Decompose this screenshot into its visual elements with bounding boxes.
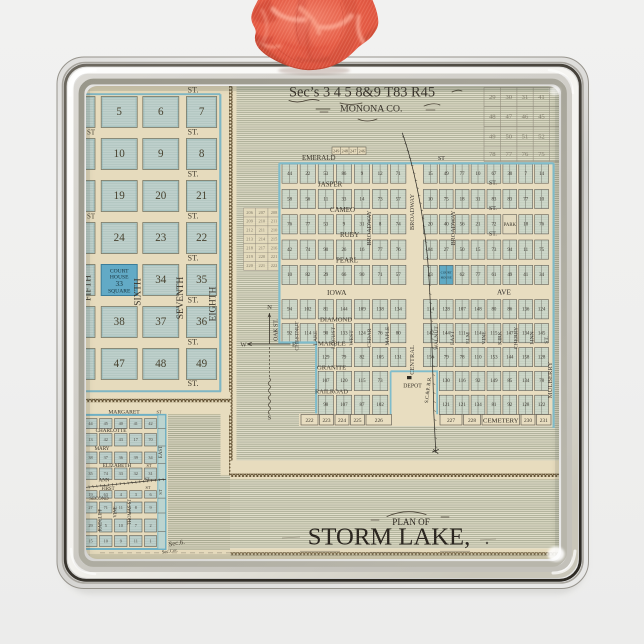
- svg-text:148: 148: [474, 308, 482, 313]
- svg-text:144: 144: [506, 355, 514, 360]
- svg-text:206: 206: [246, 210, 253, 215]
- svg-text:142: 142: [427, 331, 435, 336]
- svg-text:37: 37: [104, 455, 108, 460]
- svg-text:209: 209: [246, 219, 253, 224]
- svg-text:223: 223: [323, 418, 331, 424]
- svg-text:46: 46: [522, 114, 529, 121]
- svg-text:10: 10: [104, 539, 108, 544]
- svg-text:9: 9: [120, 539, 122, 544]
- svg-text:ELIZABETH: ELIZABETH: [103, 463, 132, 469]
- svg-text:11: 11: [323, 197, 328, 202]
- svg-text:121: 121: [458, 403, 466, 408]
- svg-text:71: 71: [378, 273, 383, 278]
- svg-text:107: 107: [458, 308, 466, 313]
- svg-text:31: 31: [148, 471, 152, 476]
- svg-text:26: 26: [341, 248, 346, 253]
- svg-text:77: 77: [460, 172, 465, 177]
- svg-text:11: 11: [134, 539, 138, 544]
- svg-text:36: 36: [119, 455, 123, 460]
- svg-text:98: 98: [323, 403, 328, 408]
- svg-text:42: 42: [287, 248, 292, 253]
- svg-text:77: 77: [476, 273, 481, 278]
- svg-text:30: 30: [505, 94, 512, 101]
- svg-text:WALNUT: WALNUT: [434, 326, 440, 350]
- svg-text:11: 11: [523, 248, 528, 253]
- svg-text:57: 57: [396, 273, 401, 278]
- svg-text:VINE: VINE: [114, 506, 119, 517]
- svg-text:EAST: EAST: [450, 330, 456, 345]
- svg-text:211: 211: [271, 219, 277, 224]
- svg-text:115: 115: [490, 331, 498, 336]
- svg-text:ST: ST: [158, 489, 163, 494]
- svg-text:87: 87: [360, 403, 365, 408]
- svg-text:120: 120: [340, 379, 348, 384]
- svg-text:COURT: COURT: [110, 269, 129, 275]
- svg-text:CEMETERY: CEMETERY: [483, 417, 519, 424]
- svg-text:LINN: LINN: [529, 331, 535, 344]
- svg-text:33: 33: [341, 197, 346, 202]
- svg-text:51: 51: [522, 133, 529, 140]
- svg-text:124: 124: [358, 331, 366, 336]
- svg-text:114: 114: [304, 331, 312, 336]
- svg-text:15: 15: [476, 248, 481, 253]
- svg-text:74: 74: [396, 223, 401, 228]
- svg-text:1: 1: [149, 539, 151, 544]
- svg-text:5: 5: [116, 106, 122, 118]
- svg-text:EIGHTH: EIGHTH: [209, 286, 219, 321]
- svg-text:34: 34: [539, 273, 544, 278]
- svg-text:215: 215: [271, 236, 278, 241]
- svg-text:231: 231: [540, 418, 548, 424]
- svg-text:36: 36: [196, 316, 208, 328]
- svg-text:80: 80: [491, 308, 496, 313]
- svg-text:75: 75: [539, 248, 544, 253]
- svg-text:109: 109: [358, 308, 366, 313]
- svg-text:221: 221: [259, 263, 266, 268]
- svg-text:82: 82: [305, 273, 310, 278]
- svg-text:147: 147: [506, 331, 514, 336]
- svg-text:ELM: ELM: [466, 332, 472, 344]
- svg-text:81: 81: [323, 308, 328, 313]
- svg-text:49: 49: [196, 358, 208, 370]
- svg-text:6: 6: [149, 492, 151, 497]
- svg-text:41: 41: [134, 421, 138, 426]
- svg-text:211: 211: [259, 228, 265, 233]
- svg-text:122: 122: [538, 403, 546, 408]
- svg-text:77: 77: [505, 151, 512, 158]
- svg-text:77: 77: [305, 223, 310, 228]
- svg-text:EAST: EAST: [159, 446, 164, 458]
- svg-text:5: 5: [105, 523, 107, 528]
- svg-text:128: 128: [538, 355, 546, 360]
- svg-text:102: 102: [376, 403, 384, 408]
- svg-text:33: 33: [119, 471, 123, 476]
- svg-text:22: 22: [305, 172, 310, 177]
- svg-text:156: 156: [427, 355, 435, 360]
- svg-text:90: 90: [323, 331, 328, 336]
- svg-text:14: 14: [539, 172, 544, 177]
- svg-text:133: 133: [340, 331, 348, 336]
- svg-text:31: 31: [360, 223, 365, 228]
- svg-text:23: 23: [155, 232, 167, 244]
- svg-text:2: 2: [149, 523, 151, 528]
- svg-text:221: 221: [271, 254, 278, 259]
- svg-text:17: 17: [134, 437, 138, 442]
- svg-text:N: N: [267, 304, 272, 311]
- svg-text:THOMAS ST: THOMAS ST: [128, 499, 133, 525]
- svg-text:BROADWAY: BROADWAY: [409, 193, 416, 230]
- svg-text:39: 39: [134, 455, 138, 460]
- svg-text:70: 70: [148, 437, 152, 442]
- svg-text:219: 219: [246, 254, 253, 259]
- svg-text:MARGARET: MARGARET: [108, 409, 140, 415]
- svg-text:31: 31: [476, 197, 481, 202]
- svg-text:84: 84: [428, 248, 433, 253]
- svg-text:128: 128: [522, 403, 530, 408]
- svg-text:226: 226: [375, 418, 383, 424]
- svg-text:216: 216: [271, 245, 278, 250]
- svg-text:EMERALD: EMERALD: [302, 155, 335, 162]
- svg-text:40: 40: [444, 223, 449, 228]
- svg-text:220: 220: [259, 254, 266, 259]
- svg-text:E: E: [292, 342, 296, 349]
- svg-text:20: 20: [428, 223, 433, 228]
- svg-text:75: 75: [538, 151, 545, 158]
- svg-text:CEDAR: CEDAR: [367, 328, 373, 347]
- svg-text:10: 10: [287, 273, 292, 278]
- svg-text:78: 78: [460, 355, 465, 360]
- svg-text:RUBY: RUBY: [340, 232, 359, 239]
- svg-text:63: 63: [104, 492, 108, 497]
- svg-text:34: 34: [155, 274, 167, 286]
- svg-text:14: 14: [360, 197, 365, 202]
- svg-text:92: 92: [507, 403, 512, 408]
- svg-text:40: 40: [119, 421, 123, 426]
- svg-text:SECOND: SECOND: [89, 497, 109, 502]
- svg-text:102: 102: [304, 308, 312, 313]
- svg-text:JASPER: JASPER: [318, 182, 343, 189]
- svg-text:ST: ST: [146, 485, 151, 490]
- svg-text:HOUSE: HOUSE: [441, 275, 452, 279]
- svg-text:85: 85: [507, 379, 512, 384]
- svg-text:16: 16: [360, 248, 365, 253]
- svg-text:37: 37: [155, 316, 167, 328]
- svg-text:9: 9: [158, 148, 164, 160]
- svg-text:77: 77: [523, 197, 528, 202]
- svg-text:ST.: ST.: [489, 181, 497, 187]
- svg-text:MARY: MARY: [95, 446, 110, 452]
- svg-text:10: 10: [114, 148, 126, 160]
- svg-text:77: 77: [378, 248, 383, 253]
- svg-text:130: 130: [443, 379, 451, 384]
- svg-text:20: 20: [155, 190, 167, 202]
- svg-text:210: 210: [259, 219, 266, 224]
- svg-text:105: 105: [376, 355, 384, 360]
- svg-text:72: 72: [491, 223, 496, 228]
- svg-text:158: 158: [522, 355, 530, 360]
- svg-text:48: 48: [155, 358, 167, 370]
- svg-text:131: 131: [395, 355, 403, 360]
- svg-text:SEVENTH: SEVENTH: [176, 276, 186, 319]
- svg-text:GRANITE: GRANITE: [317, 365, 346, 372]
- svg-text:FIRST: FIRST: [101, 487, 114, 492]
- svg-text:228: 228: [468, 418, 476, 424]
- svg-text:12: 12: [378, 172, 383, 177]
- svg-text:121: 121: [443, 403, 451, 408]
- svg-text:ST.: ST.: [187, 127, 198, 136]
- svg-text:50: 50: [505, 133, 512, 140]
- svg-text:78: 78: [539, 379, 544, 384]
- svg-text:29: 29: [489, 94, 496, 101]
- svg-text:52: 52: [538, 133, 545, 140]
- svg-text:217: 217: [259, 245, 266, 250]
- svg-text:90: 90: [360, 273, 365, 278]
- svg-text:76: 76: [287, 223, 292, 228]
- svg-text:249: 249: [333, 149, 339, 154]
- svg-text:224: 224: [338, 418, 346, 424]
- svg-text:207: 207: [259, 210, 266, 215]
- svg-text:24: 24: [114, 232, 126, 244]
- svg-text:DEPOT: DEPOT: [403, 384, 422, 390]
- svg-text:41: 41: [538, 94, 545, 101]
- svg-text:11: 11: [119, 505, 123, 510]
- svg-text:21: 21: [196, 190, 207, 202]
- svg-text:134: 134: [395, 308, 403, 313]
- svg-text:10: 10: [539, 197, 544, 202]
- svg-text:ST: ST: [147, 463, 152, 468]
- svg-text:9: 9: [149, 505, 151, 510]
- svg-text:3: 3: [135, 492, 137, 497]
- svg-text:62: 62: [460, 273, 465, 278]
- svg-text:246: 246: [359, 149, 365, 154]
- svg-text:8: 8: [135, 505, 137, 510]
- svg-text:44: 44: [287, 172, 292, 177]
- svg-text:76: 76: [378, 331, 383, 336]
- svg-text:71: 71: [396, 172, 401, 177]
- svg-text:43: 43: [119, 437, 123, 442]
- svg-text:71: 71: [104, 505, 108, 510]
- svg-text:LOCUST: LOCUST: [331, 327, 337, 349]
- svg-text:CHERRY: CHERRY: [513, 327, 519, 349]
- svg-text:W: W: [240, 342, 247, 349]
- svg-text:7: 7: [135, 523, 137, 528]
- svg-text:90: 90: [323, 248, 328, 253]
- svg-text:10: 10: [119, 523, 123, 528]
- svg-text:6: 6: [158, 106, 164, 118]
- svg-text:DIAMOND: DIAMOND: [320, 317, 352, 324]
- svg-text:10: 10: [476, 172, 481, 177]
- svg-text:92: 92: [476, 379, 481, 384]
- svg-text:145: 145: [538, 331, 546, 336]
- svg-text:ST.: ST.: [489, 232, 497, 238]
- svg-text:66: 66: [341, 273, 346, 278]
- svg-text:ANN: ANN: [99, 478, 110, 483]
- svg-text:VINE: VINE: [482, 331, 488, 345]
- svg-text:BROADWAY: BROADWAY: [367, 210, 373, 245]
- svg-text:30: 30: [507, 172, 512, 177]
- svg-text:210: 210: [271, 228, 278, 233]
- svg-text:50: 50: [460, 248, 465, 253]
- svg-text:214: 214: [259, 236, 266, 241]
- svg-text:107: 107: [322, 379, 330, 384]
- svg-text:RADCLIFF: RADCLIFF: [99, 508, 104, 531]
- svg-text:86: 86: [507, 308, 512, 313]
- svg-text:76: 76: [522, 151, 529, 158]
- svg-text:225: 225: [354, 418, 362, 424]
- svg-text:32: 32: [134, 471, 138, 476]
- svg-text:S: S: [268, 415, 272, 422]
- svg-text:144: 144: [443, 331, 451, 336]
- svg-text:18: 18: [460, 197, 465, 202]
- svg-text:BROADWAY: BROADWAY: [451, 210, 457, 245]
- svg-text:218: 218: [246, 245, 253, 250]
- svg-text:ST.: ST.: [187, 337, 198, 346]
- svg-text:53: 53: [323, 172, 328, 177]
- svg-text:81: 81: [491, 403, 496, 408]
- svg-text:IOWA: IOWA: [327, 288, 347, 297]
- svg-text:KIRK: KIRK: [498, 331, 504, 345]
- svg-text:42: 42: [148, 421, 152, 426]
- svg-text:86: 86: [341, 172, 346, 177]
- svg-text:149: 149: [490, 379, 498, 384]
- svg-text:78: 78: [489, 151, 496, 158]
- svg-text:CHARLOTTE: CHARLOTTE: [96, 428, 127, 434]
- svg-text:144: 144: [340, 308, 348, 313]
- svg-text:WEST: WEST: [349, 330, 355, 346]
- svg-text:49: 49: [444, 172, 449, 177]
- svg-text:107: 107: [340, 403, 348, 408]
- svg-text:134: 134: [522, 379, 530, 384]
- svg-text:STORM LAKE,: STORM LAKE,: [308, 524, 471, 551]
- svg-text:47: 47: [505, 114, 512, 121]
- svg-text:ST.: ST.: [187, 211, 198, 220]
- svg-text:SQUARE: SQUARE: [108, 289, 131, 295]
- svg-text:136: 136: [522, 308, 530, 313]
- svg-text:CENTRAL: CENTRAL: [409, 345, 416, 375]
- svg-text:45: 45: [538, 114, 545, 121]
- svg-text:ST.: ST.: [187, 379, 198, 388]
- svg-text:15: 15: [428, 172, 433, 177]
- svg-text:49: 49: [489, 133, 496, 140]
- svg-text:73: 73: [378, 197, 383, 202]
- svg-text:29: 29: [323, 273, 328, 278]
- svg-text:213: 213: [246, 236, 253, 241]
- svg-text:MULBERRY: MULBERRY: [547, 362, 554, 399]
- svg-text:57: 57: [396, 197, 401, 202]
- svg-text:21: 21: [476, 223, 481, 228]
- svg-text:7: 7: [199, 106, 205, 118]
- svg-text:48: 48: [489, 114, 496, 121]
- svg-text:19: 19: [114, 190, 126, 202]
- svg-text:92: 92: [287, 331, 292, 336]
- svg-text:134: 134: [522, 331, 530, 336]
- svg-text:153: 153: [490, 355, 498, 360]
- svg-text:ST.: ST.: [187, 295, 198, 304]
- svg-text:ST: ST: [156, 409, 161, 414]
- svg-text:47: 47: [114, 358, 126, 370]
- svg-text:49: 49: [507, 273, 512, 278]
- svg-text:76: 76: [539, 223, 544, 228]
- svg-text:73: 73: [378, 379, 383, 384]
- svg-text:114: 114: [474, 331, 482, 336]
- svg-text:8: 8: [199, 148, 205, 160]
- svg-text:PARK: PARK: [504, 223, 517, 228]
- svg-text:83: 83: [491, 197, 496, 202]
- svg-text:22: 22: [196, 232, 207, 244]
- svg-text:45: 45: [104, 421, 108, 426]
- svg-text:227: 227: [447, 418, 455, 424]
- svg-text:10: 10: [428, 197, 433, 202]
- svg-text:61: 61: [491, 273, 496, 278]
- svg-text:COURT: COURT: [441, 270, 452, 274]
- svg-text:41: 41: [523, 273, 528, 278]
- svg-text:18: 18: [523, 223, 528, 228]
- svg-text:56: 56: [305, 197, 310, 202]
- svg-text:ST.: ST.: [187, 253, 198, 262]
- svg-text:82: 82: [360, 355, 365, 360]
- svg-text:94: 94: [507, 248, 512, 253]
- svg-text:CAMEO: CAMEO: [330, 207, 355, 214]
- svg-text:134: 134: [474, 403, 482, 408]
- svg-text:222: 222: [271, 263, 278, 268]
- svg-text:124: 124: [538, 308, 546, 313]
- svg-text:MONONA CO.: MONONA CO.: [340, 104, 402, 115]
- svg-text:115: 115: [358, 379, 366, 384]
- svg-text:73: 73: [491, 248, 496, 253]
- svg-text:33: 33: [116, 279, 124, 288]
- svg-text:LAKE: LAKE: [313, 330, 319, 345]
- svg-text:74: 74: [305, 248, 310, 253]
- svg-text:31: 31: [522, 94, 529, 101]
- svg-text:ST.: ST.: [544, 336, 550, 344]
- svg-text:67: 67: [491, 172, 496, 177]
- svg-text:56: 56: [460, 223, 465, 228]
- svg-text:MAPLE: MAPLE: [385, 326, 391, 346]
- svg-text:ST.: ST.: [489, 206, 497, 212]
- svg-text:222: 222: [306, 418, 314, 424]
- svg-text:129: 129: [322, 355, 330, 360]
- svg-text:79: 79: [444, 355, 449, 360]
- svg-text:53: 53: [323, 223, 328, 228]
- svg-text:42: 42: [104, 437, 108, 442]
- svg-text:208: 208: [271, 210, 278, 215]
- svg-text:83: 83: [507, 197, 512, 202]
- svg-text:116: 116: [458, 379, 466, 384]
- svg-text:76: 76: [396, 248, 401, 253]
- svg-text:OAK ST.: OAK ST.: [274, 318, 280, 341]
- svg-text:ST: ST: [438, 156, 445, 162]
- svg-text:79: 79: [341, 355, 346, 360]
- svg-text:75: 75: [444, 197, 449, 202]
- svg-text:58: 58: [287, 197, 292, 202]
- svg-text:247: 247: [350, 149, 356, 154]
- svg-text:128: 128: [443, 308, 451, 313]
- svg-text:94: 94: [287, 308, 292, 313]
- svg-text:138: 138: [376, 308, 384, 313]
- svg-text:230: 230: [524, 418, 532, 424]
- svg-text:SIXTH: SIXTH: [133, 278, 143, 306]
- svg-text:AVE: AVE: [497, 289, 511, 297]
- svg-text:ST.: ST.: [187, 169, 198, 178]
- svg-text:220: 220: [246, 263, 253, 268]
- svg-text:RAILROAD: RAILROAD: [315, 388, 348, 395]
- svg-text:80: 80: [396, 331, 401, 336]
- svg-text:PEARL: PEARL: [336, 258, 358, 265]
- svg-text:110: 110: [474, 355, 482, 360]
- svg-text:212: 212: [246, 228, 253, 233]
- svg-text:38: 38: [114, 316, 126, 328]
- svg-text:111: 111: [459, 331, 467, 336]
